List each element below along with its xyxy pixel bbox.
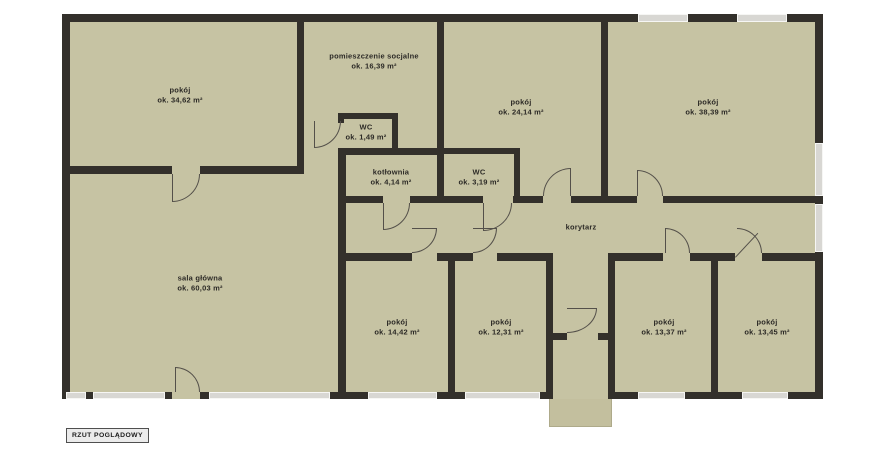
wall-segment (62, 14, 638, 22)
wall-segment (297, 14, 304, 174)
corridor-label: korytarz (566, 222, 597, 232)
wall-segment (571, 196, 637, 203)
wall-segment (437, 392, 465, 399)
room-area: ok. 14,42 m² (374, 327, 419, 337)
wall-segment (601, 14, 608, 203)
wall-segment (200, 392, 209, 399)
wall-segment (62, 14, 70, 399)
wall-segment (165, 392, 172, 399)
room-label-kotlownia: kotłownia ok. 4,14 m² (371, 168, 412, 187)
wall-segment (200, 166, 304, 174)
wall-segment (540, 392, 553, 399)
room-name: pokój (157, 86, 202, 96)
wall-segment (553, 333, 567, 340)
window (465, 392, 540, 399)
wall-segment (346, 196, 383, 203)
window (737, 14, 787, 22)
floor-plan-canvas: pokój ok. 34,62 m² pomieszczenie socjaln… (0, 0, 880, 450)
room-name: WC (459, 168, 500, 178)
room-name: pokój (374, 318, 419, 328)
window (815, 143, 823, 196)
wall-segment (663, 196, 815, 203)
wall-segment (690, 253, 735, 261)
wall-segment (608, 253, 663, 261)
wall-segment (762, 253, 815, 261)
room-area: ok. 60,03 m² (177, 283, 222, 293)
wall-segment (443, 148, 520, 154)
room-label-pokoj-2414: pokój ok. 24,14 m² (498, 98, 543, 117)
wall-segment (815, 196, 823, 204)
wall-segment (338, 113, 398, 119)
wall-segment (608, 392, 638, 399)
room-area: ok. 3,19 m² (459, 177, 500, 187)
room-label-pokoj-1231: pokój ok. 12,31 m² (478, 318, 523, 337)
wall-segment (497, 253, 553, 261)
window (93, 392, 165, 399)
wall-segment (330, 392, 368, 399)
window (638, 392, 685, 399)
room-area: ok. 12,31 m² (478, 327, 523, 337)
window (638, 14, 688, 22)
wall-segment (338, 148, 443, 155)
window (368, 392, 437, 399)
wall-segment (338, 253, 412, 261)
wall-segment (437, 14, 444, 203)
room-label-pokoj-1345: pokój ok. 13,45 m² (744, 318, 789, 337)
room-area: ok. 34,62 m² (157, 95, 202, 105)
entrance-porch (549, 399, 612, 427)
wall-segment (410, 196, 483, 203)
room-area: ok. 1,49 m² (346, 132, 387, 142)
wall-segment (546, 261, 553, 392)
wall-segment (711, 261, 718, 392)
room-area: ok. 13,45 m² (744, 327, 789, 337)
window (209, 392, 330, 399)
wall-segment (437, 253, 473, 261)
wall-segment (62, 166, 172, 174)
wall-segment (815, 252, 823, 399)
room-label-pokoj-3839: pokój ok. 38,39 m² (685, 98, 730, 117)
room-area: ok. 13,37 m² (641, 327, 686, 337)
room-label-wc-319: WC ok. 3,19 m² (459, 168, 500, 187)
entrance-opening (553, 392, 608, 399)
room-area: ok. 24,14 m² (498, 107, 543, 117)
room-name: WC (346, 123, 387, 133)
room-label-pokoj-3462: pokój ok. 34,62 m² (157, 86, 202, 105)
wall-segment (688, 14, 737, 22)
wall-segment (513, 196, 543, 203)
wall-segment (448, 261, 455, 392)
window (66, 392, 86, 399)
room-label-wc-149: WC ok. 1,49 m² (346, 123, 387, 142)
room-name: kotłownia (371, 168, 412, 178)
wall-segment (514, 148, 520, 203)
room-label-socjalne: pomieszczenie socjalne ok. 16,39 m² (329, 52, 418, 71)
room-name: pokój (744, 318, 789, 328)
window (815, 204, 823, 252)
room-area: ok. 38,39 m² (685, 107, 730, 117)
room-name: pokój (478, 318, 523, 328)
wall-segment (815, 14, 823, 143)
wall-segment (598, 333, 608, 340)
room-label-pokoj-1337: pokój ok. 13,37 m² (641, 318, 686, 337)
wall-segment (338, 148, 346, 399)
room-label-pokoj-1442: pokój ok. 14,42 m² (374, 318, 419, 337)
room-name: pomieszczenie socjalne (329, 52, 418, 62)
wall-segment (86, 392, 93, 399)
plan-type-badge: RZUT POGLĄDOWY (66, 428, 149, 443)
room-name: pokój (685, 98, 730, 108)
room-name: sala główna (177, 274, 222, 284)
room-name: pokój (641, 318, 686, 328)
wall-segment (685, 392, 742, 399)
room-area: ok. 16,39 m² (329, 61, 418, 71)
room-label-sala-glowna: sala główna ok. 60,03 m² (177, 274, 222, 293)
wall-segment (608, 261, 615, 392)
room-name: korytarz (566, 222, 597, 232)
wall-segment (788, 392, 823, 399)
room-area: ok. 4,14 m² (371, 177, 412, 187)
window (742, 392, 788, 399)
room-name: pokój (498, 98, 543, 108)
